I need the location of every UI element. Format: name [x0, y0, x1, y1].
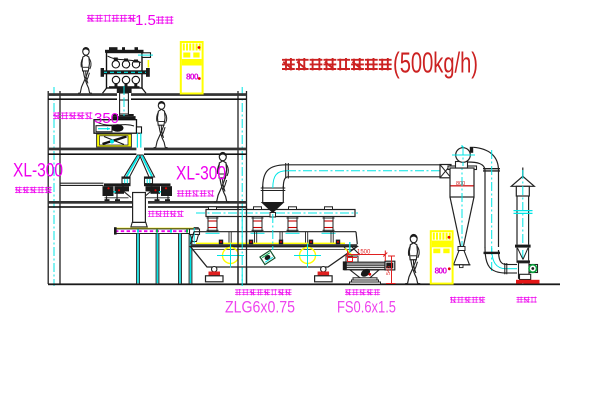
svg-text:350: 350 — [94, 110, 119, 127]
svg-text:ZLG6x0.75: ZLG6x0.75 — [225, 299, 295, 317]
svg-text:XL-300: XL-300 — [13, 161, 63, 182]
svg-text:545: 545 — [386, 266, 392, 275]
svg-text:800: 800 — [456, 181, 465, 187]
svg-text:FS0.6x1.5: FS0.6x1.5 — [337, 299, 396, 317]
svg-text:800: 800 — [435, 266, 448, 276]
svg-text:1.5: 1.5 — [135, 12, 156, 29]
svg-text:(500kg/h): (500kg/h) — [393, 48, 478, 80]
svg-text:800: 800 — [186, 72, 199, 82]
svg-text:1500: 1500 — [357, 250, 371, 256]
svg-text:XL-300: XL-300 — [176, 164, 226, 185]
